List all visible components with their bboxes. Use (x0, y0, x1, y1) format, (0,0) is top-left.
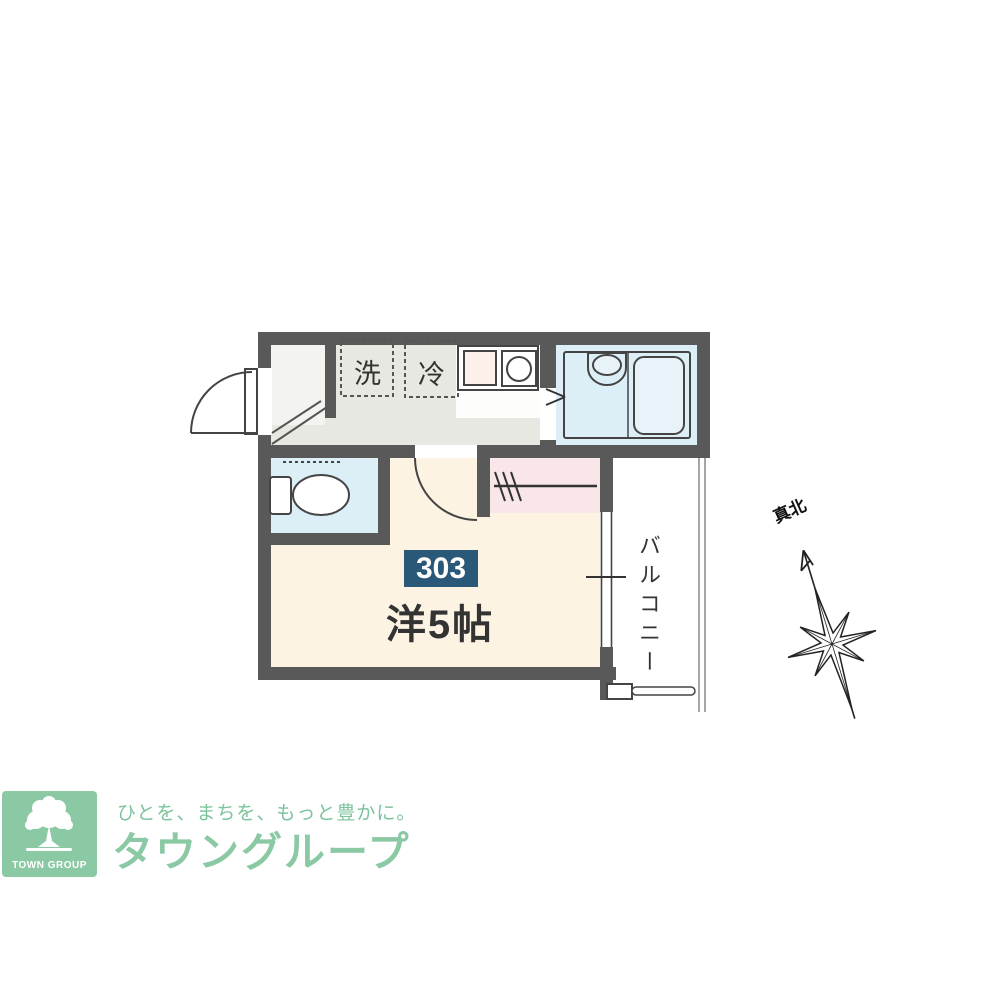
brand-name: タウングループ (112, 818, 411, 878)
compass-icon (759, 537, 898, 732)
entrance-door-opening (257, 368, 272, 435)
wall-room-right-upper (600, 458, 613, 512)
bathroom-floor (556, 345, 697, 445)
unit-number-badge: 303 (404, 550, 478, 587)
balcony-label: バルコニー (632, 534, 664, 684)
logo-text: TOWN GROUP (2, 860, 97, 871)
wall-genkan-stub (325, 332, 336, 418)
room-door-opening (415, 445, 477, 458)
toilet-room-floor (271, 458, 378, 533)
kitchen-counter (456, 345, 540, 418)
wall-room-right-lower (600, 647, 613, 700)
balcony-edge (699, 458, 705, 712)
wall-toilet-right (378, 445, 390, 545)
wall-mid-right (477, 445, 710, 458)
fridge-label: 冷 (405, 353, 458, 392)
wall-right-bath (697, 332, 710, 458)
room-size-label: 洋5帖 (330, 592, 550, 650)
wall-toilet-bottom (258, 533, 390, 545)
balcony-drain-icon (607, 684, 695, 699)
entrance-door-icon (191, 369, 257, 434)
bathroom-door-opening (540, 388, 556, 440)
tree-icon (2, 791, 97, 857)
true-north-label: 真北 (768, 491, 809, 528)
wall-bottom (258, 667, 616, 680)
wall-closet-stub (477, 445, 490, 517)
floor-plan-page: 洗 冷 303 洋5帖 バルコニー 真北 TOWN GROUP ひとを、まちを、… (0, 0, 1000, 1000)
entrance-genkan-floor (271, 345, 325, 425)
closet-floor (490, 458, 600, 513)
wall-mid-left (258, 445, 415, 458)
town-group-logo: TOWN GROUP (2, 791, 97, 877)
washer-label: 洗 (341, 352, 394, 391)
